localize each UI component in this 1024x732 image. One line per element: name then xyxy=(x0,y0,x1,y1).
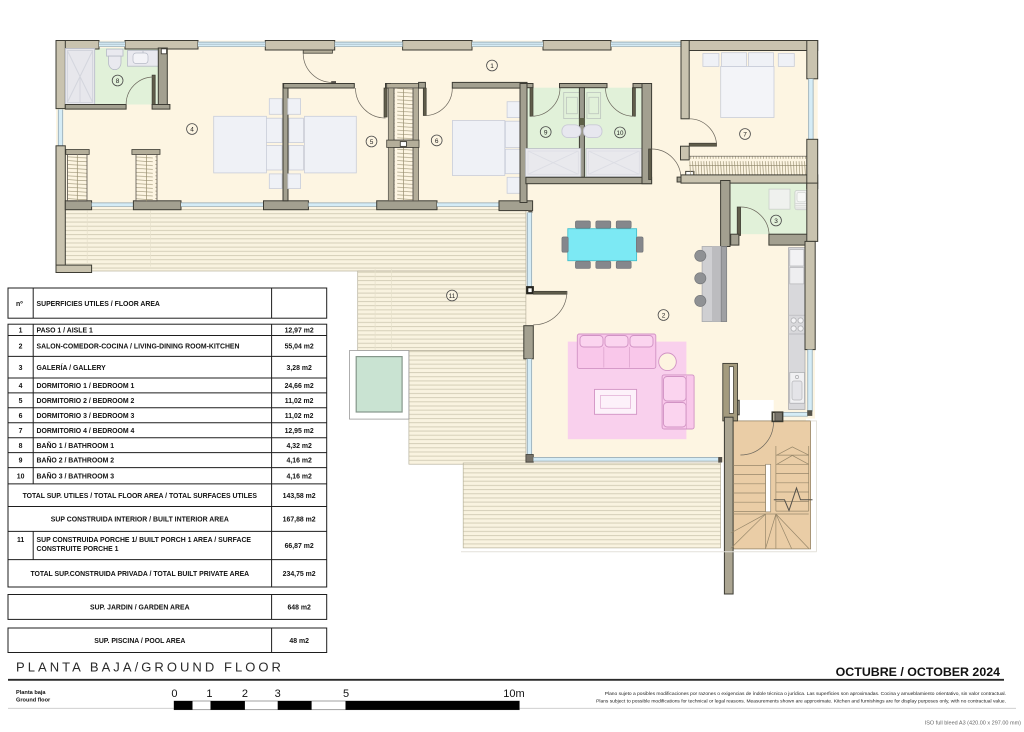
svg-text:3: 3 xyxy=(275,688,281,700)
svg-text:SALON-COMEDOR-COCINA / LIVING: SALON-COMEDOR-COCINA / LIVING-DINING ROO… xyxy=(37,344,240,351)
svg-text:BAÑO 3 / BATHROOM 3: BAÑO 3 / BATHROOM 3 xyxy=(37,471,115,480)
svg-text:4,16 m2: 4,16 m2 xyxy=(287,473,312,480)
svg-text:6: 6 xyxy=(435,138,439,145)
svg-text:12,97 m2: 12,97 m2 xyxy=(285,327,314,334)
svg-text:Planta baja: Planta baja xyxy=(16,690,46,696)
svg-text:4,16 m2: 4,16 m2 xyxy=(287,458,312,465)
svg-text:BAÑO 1 / BATHROOM 1: BAÑO 1 / BATHROOM 1 xyxy=(37,441,115,450)
svg-text:8: 8 xyxy=(19,443,23,450)
svg-text:55,04 m2: 55,04 m2 xyxy=(285,344,314,351)
svg-text:24,66 m2: 24,66 m2 xyxy=(285,383,314,390)
svg-text:SUP. PISCINA / POOL AREA: SUP. PISCINA / POOL AREA xyxy=(94,638,185,645)
svg-text:5: 5 xyxy=(19,398,23,405)
svg-text:DORMITORIO 4 / BEDROOM 4: DORMITORIO 4 / BEDROOM 4 xyxy=(37,428,135,435)
svg-text:9: 9 xyxy=(544,130,548,137)
svg-text:10: 10 xyxy=(17,473,25,480)
svg-text:PLANTA BAJA/GROUND FLOOR: PLANTA BAJA/GROUND FLOOR xyxy=(16,660,284,675)
svg-text:11: 11 xyxy=(449,293,456,300)
svg-text:SUP. JARDIN / GARDEN AREA: SUP. JARDIN / GARDEN AREA xyxy=(90,605,190,612)
svg-text:66,87 m2: 66,87 m2 xyxy=(285,543,314,550)
svg-text:DORMITORIO 2 / BEDROOM 2: DORMITORIO 2 / BEDROOM 2 xyxy=(37,398,135,405)
svg-text:PASO 1 / AISLE 1: PASO 1 / AISLE 1 xyxy=(37,327,93,334)
svg-text:11,02 m2: 11,02 m2 xyxy=(285,413,314,420)
svg-text:10m: 10m xyxy=(503,688,524,700)
svg-text:10: 10 xyxy=(617,130,624,137)
svg-text:nº: nº xyxy=(16,301,23,308)
svg-text:DORMITORIO 3 / BEDROOM 3: DORMITORIO 3 / BEDROOM 3 xyxy=(37,413,135,420)
svg-text:SUP CONSTRUIDA PORCHE 1/ BUILT: SUP CONSTRUIDA PORCHE 1/ BUILT PORCH 1 A… xyxy=(37,537,252,544)
svg-text:GALERÍA / GALLERY: GALERÍA / GALLERY xyxy=(37,363,107,372)
svg-text:4: 4 xyxy=(190,127,194,134)
svg-text:5: 5 xyxy=(370,139,374,146)
svg-text:1: 1 xyxy=(490,63,494,70)
svg-text:DORMITORIO 1 / BEDROOM 1: DORMITORIO 1 / BEDROOM 1 xyxy=(37,383,135,390)
svg-text:SUPERFICIES UTILES / FLOOR ARE: SUPERFICIES UTILES / FLOOR AREA xyxy=(37,301,160,308)
svg-text:8: 8 xyxy=(116,78,120,85)
svg-text:3,28 m2: 3,28 m2 xyxy=(287,365,312,372)
svg-text:7: 7 xyxy=(19,428,23,435)
svg-text:0: 0 xyxy=(171,688,177,700)
svg-text:Plano sujeto a posibles modifi: Plano sujeto a posibles modificaciones p… xyxy=(605,691,1006,697)
svg-text:143,58 m2: 143,58 m2 xyxy=(283,493,316,500)
svg-text:SUP CONSTRUIDA INTERIOR / BUIL: SUP CONSTRUIDA INTERIOR / BUILT INTERIOR… xyxy=(51,517,229,524)
svg-text:4: 4 xyxy=(19,383,23,390)
svg-text:4,32 m2: 4,32 m2 xyxy=(287,443,312,450)
svg-text:ISO full bleed A3 (420.00 x 29: ISO full bleed A3 (420.00 x 297.00 mm) xyxy=(925,721,1021,727)
svg-text:TOTAL SUP. UTILES / TOTAL FLOO: TOTAL SUP. UTILES / TOTAL FLOOR AREA / T… xyxy=(23,493,258,500)
svg-text:3: 3 xyxy=(19,365,23,372)
svg-text:7: 7 xyxy=(743,132,747,139)
svg-text:648 m2: 648 m2 xyxy=(287,605,311,612)
svg-text:Ground floor: Ground floor xyxy=(16,698,51,704)
svg-text:6: 6 xyxy=(19,413,23,420)
svg-text:Plans subject to possible modi: Plans subject to possible modifications … xyxy=(596,699,1006,705)
svg-text:167,88 m2: 167,88 m2 xyxy=(283,517,316,524)
svg-text:BAÑO 2 / BATHROOM 2: BAÑO 2 / BATHROOM 2 xyxy=(37,456,115,465)
svg-text:1: 1 xyxy=(206,688,212,700)
svg-text:11: 11 xyxy=(17,537,24,544)
svg-text:11,02 m2: 11,02 m2 xyxy=(285,398,314,405)
svg-text:2: 2 xyxy=(662,313,666,320)
svg-text:5: 5 xyxy=(343,688,349,700)
svg-text:234,75 m2: 234,75 m2 xyxy=(283,571,316,578)
svg-text:2: 2 xyxy=(19,344,23,351)
svg-text:3: 3 xyxy=(774,218,778,225)
svg-text:9: 9 xyxy=(19,458,23,465)
svg-text:2: 2 xyxy=(242,688,248,700)
svg-text:CONSTRUITE PORCHE 1: CONSTRUITE PORCHE 1 xyxy=(37,546,119,553)
svg-text:12,95 m2: 12,95 m2 xyxy=(285,428,314,435)
svg-text:OCTUBRE / OCTOBER 2024: OCTUBRE / OCTOBER 2024 xyxy=(836,665,1000,679)
svg-text:48 m2: 48 m2 xyxy=(289,638,309,645)
svg-text:TOTAL SUP.CONSTRUIDA PRIVADA /: TOTAL SUP.CONSTRUIDA PRIVADA / TOTAL BUI… xyxy=(30,571,249,578)
svg-text:1: 1 xyxy=(19,327,23,334)
